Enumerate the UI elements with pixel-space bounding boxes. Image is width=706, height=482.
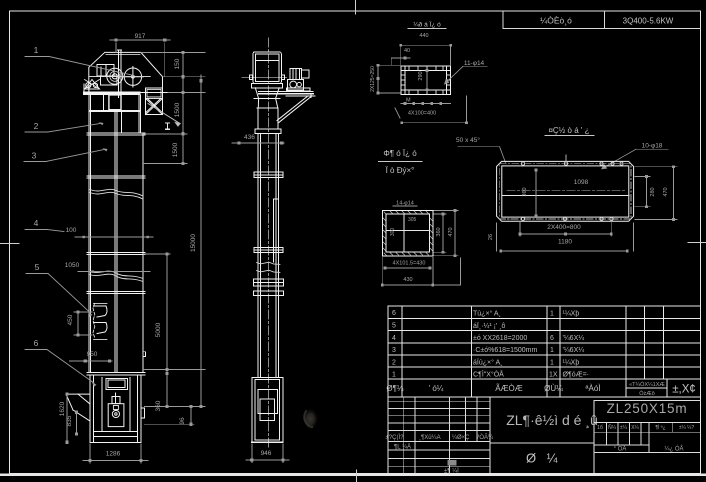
svg-text:50 x 45°: 50 x 45° [456, 136, 480, 144]
svg-text:1050: 1050 [65, 262, 80, 269]
svg-text:470: 470 [448, 227, 454, 236]
svg-text:3: 3 [32, 151, 37, 161]
svg-text:¹¼Xþ: ¹¼Xþ [563, 311, 580, 318]
svg-text:Ñ¼: Ñ¼ [608, 424, 617, 431]
svg-text:290: 290 [418, 71, 424, 80]
svg-text:2X400=800: 2X400=800 [547, 224, 581, 231]
svg-text:4: 4 [34, 218, 39, 228]
svg-text:1: 1 [550, 347, 554, 354]
svg-text:X¼: X¼ [631, 425, 639, 431]
svg-text:C¶Ì"X°ÒÅ: C¶Ì"X°ÒÅ [473, 370, 504, 379]
svg-text:6: 6 [550, 335, 554, 342]
svg-text:40: 40 [404, 48, 410, 54]
svg-text:ZL250X15m: ZL250X15m [607, 401, 688, 416]
svg-text:5: 5 [35, 262, 40, 272]
svg-text:Ø¶¼: Ø¶¼ [386, 384, 404, 393]
svg-text:1X: 1X [549, 372, 558, 379]
svg-text:2: 2 [392, 360, 396, 367]
svg-text:5: 5 [392, 323, 396, 330]
svg-text:2X125=250: 2X125=250 [370, 66, 376, 92]
svg-text:360: 360 [522, 187, 528, 196]
svg-text:6: 6 [34, 338, 39, 348]
svg-text:430: 430 [403, 277, 412, 283]
svg-text:1180: 1180 [558, 239, 572, 246]
svg-text:917: 917 [135, 33, 146, 40]
svg-text:946: 946 [261, 450, 272, 457]
svg-text:1500: 1500 [174, 102, 181, 117]
svg-text:Ï ò Ðý×°: Ï ò Ðý×° [386, 166, 415, 175]
svg-text:5000: 5000 [155, 322, 162, 337]
svg-text:300: 300 [390, 228, 396, 237]
svg-text:±,X¢: ±,X¢ [672, 384, 696, 396]
svg-text:1098: 1098 [574, 179, 589, 186]
svg-text:Tù¿×° A¸: Tù¿×° A¸ [473, 310, 501, 318]
svg-text:±¼ ¼?: ±¼ ¼? [679, 425, 694, 431]
svg-text:Ø: Ø [526, 451, 536, 466]
svg-text:¼¿ ÓÅ: ¼¿ ÓÅ [664, 446, 683, 453]
svg-text:4X101.5=430: 4X101.5=430 [393, 261, 426, 267]
svg-text:96: 96 [179, 417, 186, 425]
svg-text:±ó XX2618=2000: ±ó XX2618=2000 [473, 335, 527, 342]
svg-text:10-φ18: 10-φ18 [642, 143, 663, 150]
svg-text:'¼6X¼: '¼6X¼ [563, 335, 585, 342]
svg-text:ØÙ¼: ØÙ¼ [544, 384, 563, 393]
svg-text:¹¼Xþ: ¹¼Xþ [563, 360, 580, 367]
svg-text:' ó¼: ' ó¼ [429, 384, 444, 393]
svg-text:3: 3 [392, 347, 396, 354]
svg-text:470: 470 [663, 187, 669, 196]
svg-text:1286: 1286 [106, 451, 121, 458]
svg-text:° ÓÅ: ° ÓÅ [614, 446, 627, 453]
svg-text:áÏ¸·¼¹ ¡' ¸ô: áÏ¸·¼¹ ¡' ¸ô [473, 322, 506, 330]
svg-text:436: 436 [244, 134, 255, 141]
svg-text:¸¶Xü¼A: ¸¶Xü¼A [419, 435, 441, 441]
svg-text:áÏù¿×° A¸: áÏù¿×° A¸ [473, 359, 502, 367]
svg-text:360: 360 [436, 227, 442, 236]
svg-text:280: 280 [650, 187, 656, 196]
svg-text:M: M [406, 98, 411, 104]
svg-text:Φ¶ ó Ï¿ ó: Φ¶ ó Ï¿ ó [383, 149, 417, 158]
svg-text:ZL¶·ê½ì d é ¸û: ZL¶·ê½ì d é ¸û [506, 412, 598, 428]
svg-text:835: 835 [66, 415, 73, 426]
svg-text:3Q400-5.6KW: 3Q400-5.6KW [623, 17, 674, 26]
svg-text:1б: 1б [597, 425, 603, 431]
svg-text:360: 360 [155, 400, 162, 411]
svg-text:¶Ì ª¿: ¶Ì ª¿ [655, 424, 665, 431]
svg-text:ÃÆÒÆ: ÃÆÒÆ [495, 384, 523, 393]
svg-text:1: 1 [550, 360, 554, 367]
svg-text:1: 1 [392, 372, 396, 379]
svg-text:¼Ø×Ç: ¼Ø×Ç [452, 435, 470, 441]
svg-text:·C±ó%618=1500mm: ·C±ó%618=1500mm [473, 347, 538, 354]
svg-text:±¼: ±¼ [620, 425, 628, 431]
svg-text:1: 1 [550, 311, 554, 318]
svg-text:'¼6X¼: '¼6X¼ [563, 347, 585, 354]
svg-text:100: 100 [66, 227, 77, 234]
svg-text:¼ÒÈò¸ó: ¼ÒÈò¸ó [540, 16, 572, 26]
svg-text:Ø¶óÆ=·: Ø¶óÆ=· [563, 372, 590, 379]
svg-text:305: 305 [408, 217, 417, 223]
svg-text:ªÀóÌ: ªÀóÌ [586, 384, 601, 393]
svg-text:15000: 15000 [190, 234, 197, 252]
svg-text:4X100=400: 4X100=400 [408, 111, 436, 117]
svg-text:±?Ç(Ì?: ±?Ç(Ì? [386, 434, 405, 441]
svg-text:2: 2 [34, 121, 39, 131]
svg-text:26: 26 [488, 234, 494, 240]
svg-text:¼ð á Ï¿ ó: ¼ð á Ï¿ ó [413, 21, 441, 29]
svg-text:1500: 1500 [172, 142, 179, 157]
svg-text:¼: ¼ [547, 451, 558, 466]
svg-text:±¶ ¼Ì: ±¶ ¼Ì [444, 468, 459, 475]
svg-text:950: 950 [87, 351, 98, 358]
svg-text:1: 1 [34, 45, 39, 55]
svg-text:«T¼ÒX¼1XÆ: «T¼ÒX¼1XÆ [629, 381, 665, 388]
svg-text:150: 150 [174, 58, 181, 69]
svg-text:4: 4 [392, 335, 396, 342]
svg-text:1620: 1620 [59, 401, 66, 416]
svg-text:6: 6 [392, 310, 396, 317]
svg-text:ÒżÆô: ÒżÆô [639, 390, 655, 397]
svg-text:¤Ç½ ò á ' ¿: ¤Ç½ ò á ' ¿ [548, 126, 589, 135]
svg-text:¶L ¾Ä: ¶L ¾Ä [394, 444, 411, 451]
svg-text:?ÒÃ¼: ?ÒÃ¼ [476, 434, 494, 441]
svg-text:450: 450 [67, 314, 74, 325]
svg-text:440: 440 [419, 33, 428, 39]
